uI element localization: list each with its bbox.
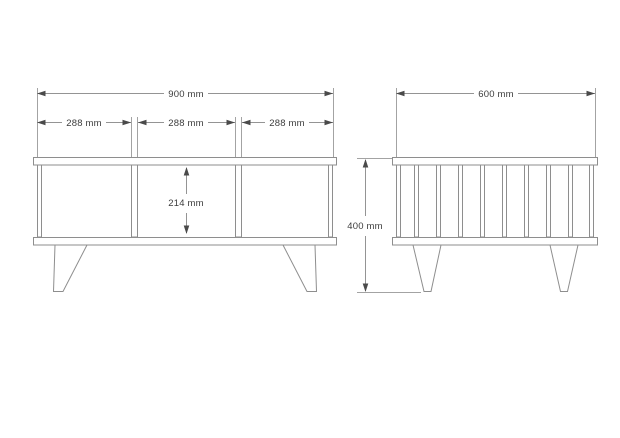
overall-width-label: 900 mm xyxy=(168,89,204,100)
dim-section-3: 288 mm xyxy=(242,118,333,129)
slat-panel xyxy=(397,165,594,237)
slat xyxy=(569,165,573,237)
slat xyxy=(437,165,441,237)
slat-edge-left xyxy=(397,165,401,237)
side-right-leg xyxy=(550,245,578,292)
tabletop-side xyxy=(393,158,598,166)
depth-label: 600 mm xyxy=(478,89,514,100)
furniture-dimension-drawing: 900 mm 288 mm 288 mm 288 mm xyxy=(0,0,620,438)
dim-section-2: 288 mm xyxy=(138,118,235,129)
section-3-label: 288 mm xyxy=(269,118,305,129)
slat xyxy=(415,165,419,237)
front-right-leg xyxy=(283,245,317,292)
height-label: 400 mm xyxy=(347,221,383,232)
slat xyxy=(547,165,551,237)
slat-edge-right xyxy=(590,165,594,237)
tabletop-front xyxy=(34,158,337,166)
divider-right xyxy=(236,165,242,237)
slat xyxy=(525,165,529,237)
dim-height: 400 mm xyxy=(347,159,383,292)
dim-opening-height: 214 mm xyxy=(168,167,204,234)
slat xyxy=(503,165,507,237)
front-left-leg xyxy=(54,245,88,292)
dim-depth: 600 mm xyxy=(396,89,595,100)
dim-section-1: 288 mm xyxy=(37,118,131,129)
left-side-panel xyxy=(38,165,42,237)
side-view: 600 mm 400 mm xyxy=(347,88,597,293)
section-2-label: 288 mm xyxy=(168,118,204,129)
front-view: 900 mm 288 mm 288 mm 288 mm xyxy=(34,88,337,292)
bottom-shelf-side xyxy=(393,238,598,246)
side-left-leg xyxy=(413,245,441,292)
drawing-canvas: 900 mm 288 mm 288 mm 288 mm xyxy=(0,0,620,438)
right-side-panel xyxy=(329,165,333,237)
slat xyxy=(459,165,463,237)
opening-height-label: 214 mm xyxy=(168,198,204,209)
dim-overall-width: 900 mm xyxy=(37,89,333,100)
slat xyxy=(481,165,485,237)
section-1-label: 288 mm xyxy=(66,118,102,129)
bottom-shelf-front xyxy=(34,238,337,246)
divider-left xyxy=(132,165,138,237)
